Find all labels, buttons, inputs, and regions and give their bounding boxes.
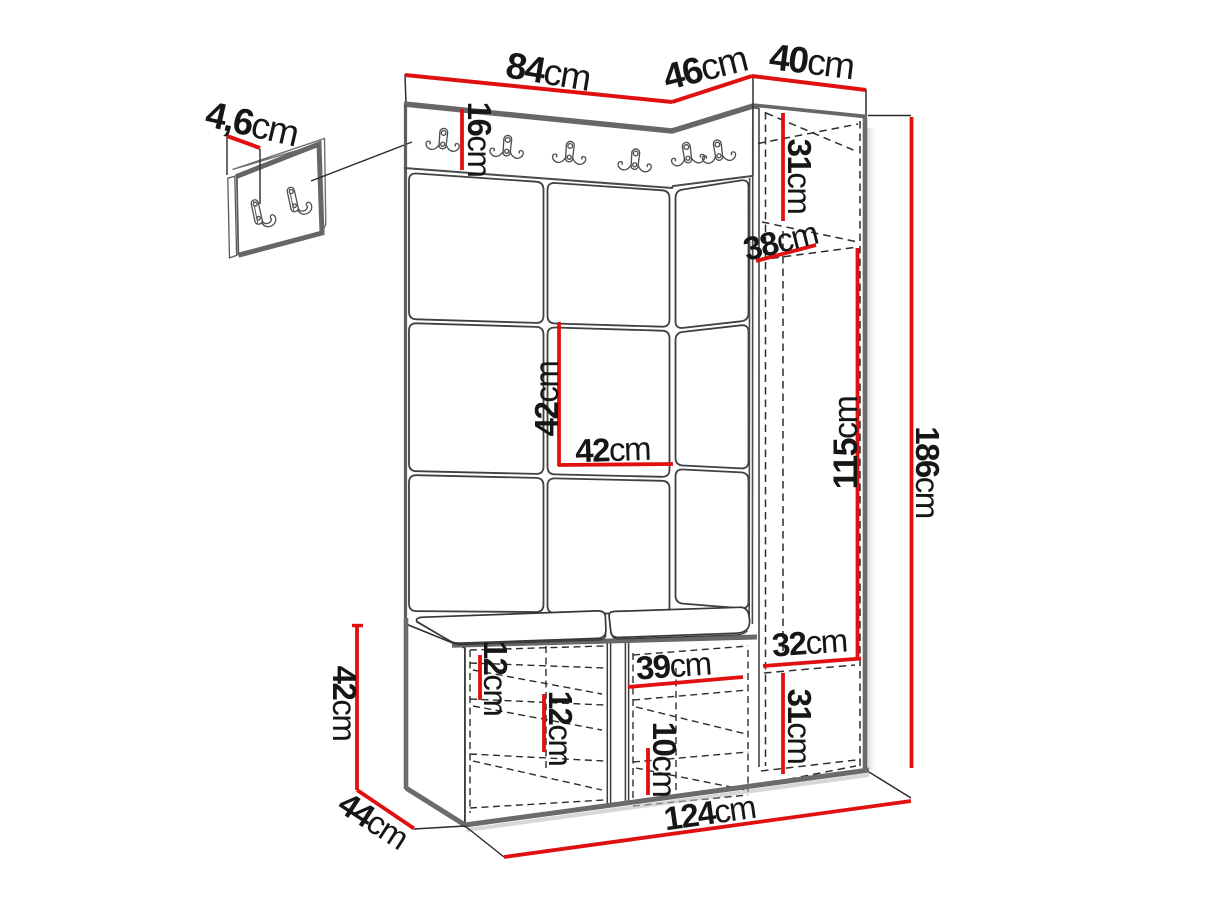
svg-text:12cm: 12cm <box>542 691 579 766</box>
svg-text:10cm: 10cm <box>646 722 683 797</box>
svg-text:115cm: 115cm <box>827 396 865 489</box>
svg-text:42cm: 42cm <box>528 362 565 437</box>
svg-text:42cm: 42cm <box>575 430 651 470</box>
svg-text:42cm: 42cm <box>326 666 363 741</box>
svg-text:39cm: 39cm <box>635 644 712 686</box>
svg-text:32cm: 32cm <box>771 621 848 663</box>
svg-text:16cm: 16cm <box>461 102 498 177</box>
svg-text:31cm: 31cm <box>781 139 818 214</box>
svg-text:186cm: 186cm <box>909 426 946 518</box>
svg-text:12cm: 12cm <box>477 641 514 716</box>
svg-text:31cm: 31cm <box>781 689 818 764</box>
